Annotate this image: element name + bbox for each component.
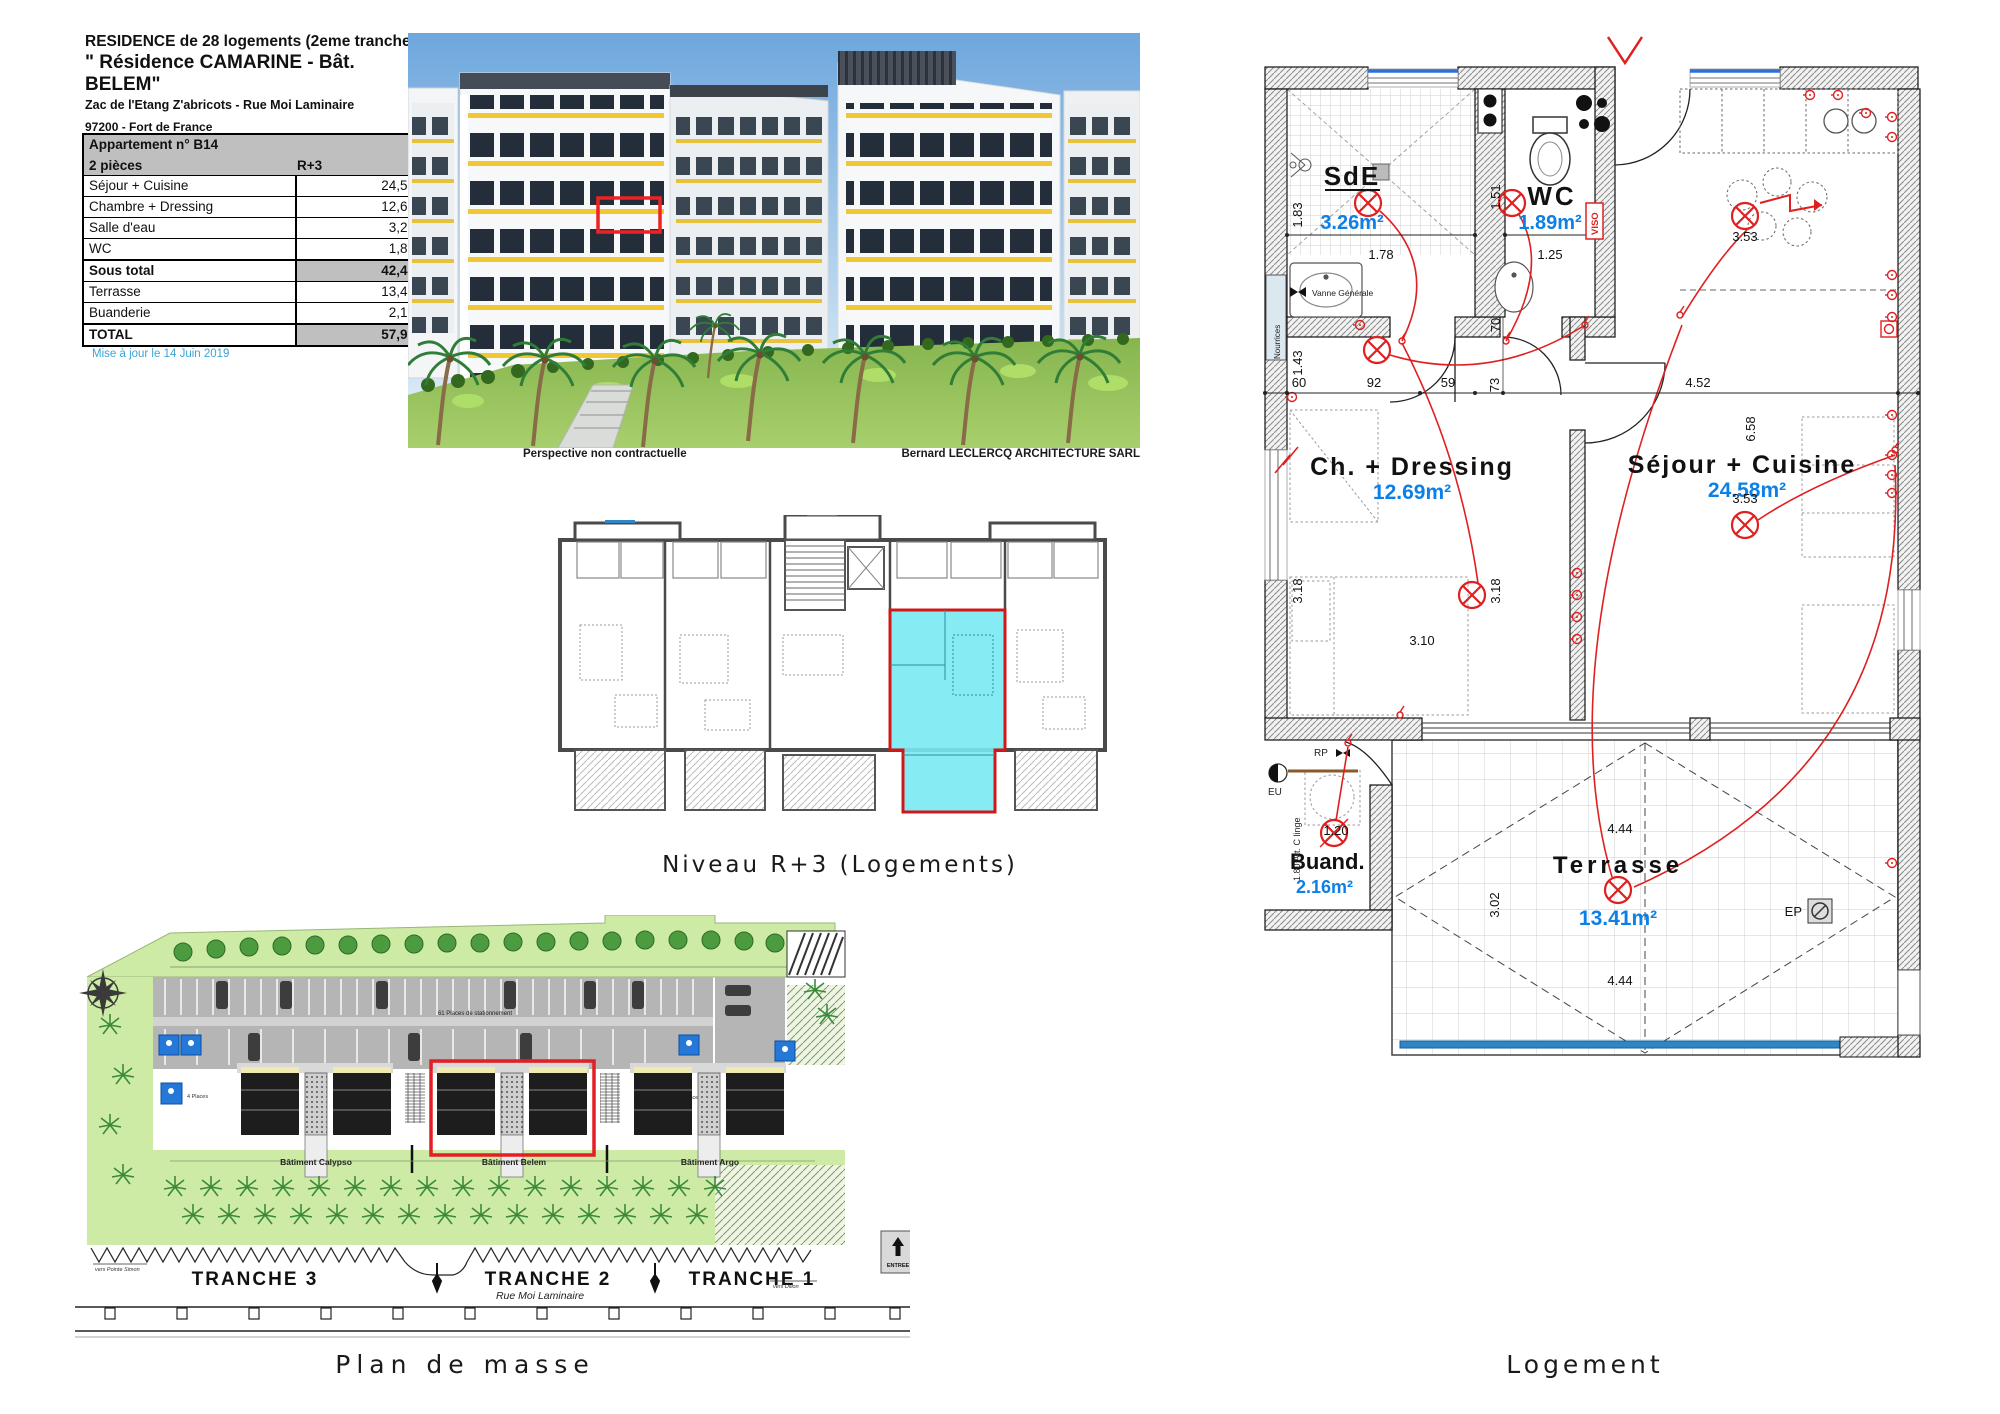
tranche3-label: TRANCHE 3 <box>192 1269 319 1290</box>
subtotal-row: Sous total 42,42 <box>84 259 422 281</box>
room-chambre-labels: Ch. + Dressing 12.69m² 3.18 3.10 3.18 <box>1290 453 1514 648</box>
table-row: WC 1,89 <box>84 238 422 259</box>
building-far-right <box>1064 91 1140 375</box>
dim-353m: 3.53 <box>1732 491 1757 506</box>
kitchen <box>1680 89 1898 290</box>
places-left-label: 4 Places <box>187 1094 208 1100</box>
room-name: Séjour + Cuisine <box>1628 451 1857 479</box>
dim-318m: 3.18 <box>1488 578 1503 603</box>
table-header-level: R+3 <box>273 135 422 175</box>
dim-178: 1.78 <box>1368 247 1393 262</box>
row-label: Séjour + Cuisine <box>84 176 297 196</box>
green-top-band <box>87 915 835 977</box>
direction-left-label: vers Pointe Simon <box>95 1267 140 1273</box>
apartment-number: Appartement n° B14 <box>89 135 273 154</box>
dim-151: 1.51 <box>1488 184 1503 209</box>
row-value: 1,89 <box>297 239 422 259</box>
dim-60: 60 <box>1292 375 1306 390</box>
room-area: 1.89m² <box>1518 212 1582 234</box>
dim-125: 1.25 <box>1537 247 1562 262</box>
row-value: 24,58 <box>297 176 422 196</box>
wc-washbasin <box>1495 262 1533 312</box>
table-header-row: Appartement n° B14 2 pièces R+3 <box>84 135 422 175</box>
entry-canopy <box>787 931 845 977</box>
dim-444b: 4.44 <box>1607 973 1632 988</box>
street-label: Rue Moi Laminaire <box>496 1290 584 1302</box>
terrace-drain <box>1808 899 1832 923</box>
caption-left: Perspective non contractuelle <box>523 448 687 460</box>
table-row: Salle d'eau 3,26 <box>84 217 422 238</box>
table-row: Chambre + Dressing 12,69 <box>84 196 422 217</box>
dim-143: 1.43 <box>1290 350 1305 375</box>
update-note: Mise à jour le 14 Juin 2019 <box>92 348 229 360</box>
dim-310: 3.10 <box>1409 633 1434 648</box>
technical-shaft <box>1478 89 1502 133</box>
project-header: RESIDENCE de 28 logements (2eme tranche)… <box>85 33 425 134</box>
room-name: Terrasse <box>1553 852 1683 879</box>
bank-right2 <box>715 1165 845 1245</box>
floorplan-caption: Niveau R+3 (Logements) <box>640 852 1040 878</box>
dim-59: 59 <box>1441 375 1455 390</box>
apartment-plan: SdE 3.26m² 1.78 1.83 WC 1.89m² 1.25 1.51… <box>1250 25 1950 1070</box>
apartment-type: 2 pièces <box>89 156 273 175</box>
row-label: WC <box>84 239 297 259</box>
row-label: Salle d'eau <box>84 218 297 238</box>
row-label: Terrasse <box>84 282 297 302</box>
site-plan: 61 Places de stationnement 4 Places 6 Pl… <box>75 915 910 1340</box>
table-header-left: Appartement n° B14 2 pièces <box>84 135 273 175</box>
dim-353t: 3.53 <box>1732 229 1757 244</box>
project-title: RESIDENCE de 28 logements (2eme tranche) <box>85 33 425 51</box>
building-label-argo: Bâtiment Argo <box>681 1157 739 1167</box>
room-area: 12.69m² <box>1373 481 1451 504</box>
dim-302: 3.02 <box>1487 892 1502 917</box>
dim-70: 70 <box>1488 318 1503 332</box>
plan-sheet: RESIDENCE de 28 logements (2eme tranche)… <box>0 0 2000 1414</box>
nourrices-label: Nourrices <box>1273 325 1282 359</box>
kitchen-sink-icon <box>1824 109 1876 133</box>
building-far-left <box>408 88 458 378</box>
siteplan-caption: Plan de masse <box>330 1350 600 1379</box>
perspective-caption: Perspective non contractuelle Bernard LE… <box>408 448 1140 460</box>
total-row: TOTAL 57,99 <box>84 323 422 345</box>
room-name: SdE <box>1324 161 1381 191</box>
building-label-belem: Bâtiment Belem <box>482 1157 547 1167</box>
tranche2-label: TRANCHE 2 <box>485 1269 612 1290</box>
residence-name: " Résidence CAMARINE - Bât. BELEM" <box>85 52 425 96</box>
dim-120: 1.20 <box>1323 823 1348 838</box>
address-line: Zac de l'Etang Z'abricots - Rue Moi Lami… <box>85 98 425 112</box>
dim-452: 4.52 <box>1685 375 1710 390</box>
perspective-rendering <box>408 33 1140 448</box>
balconies <box>575 750 1097 810</box>
site-entrance: ENTREE <box>881 1231 910 1273</box>
row-value: 57,99 <box>297 325 422 345</box>
row-value: 3,26 <box>297 218 422 238</box>
room-area: 2.16m² <box>1296 877 1353 897</box>
att-linge-label: 1.80 Att. C linge <box>1292 817 1302 881</box>
row-label: Sous total <box>84 261 297 281</box>
rp-label: RP <box>1314 748 1328 759</box>
vanne-label: Vanne Générale <box>1312 288 1374 298</box>
table-row: Séjour + Cuisine 24,58 <box>84 175 422 196</box>
building-center <box>670 85 828 378</box>
row-label: TOTAL <box>84 325 297 345</box>
viso-label: VISO <box>1590 212 1601 235</box>
room-name: Ch. + Dressing <box>1310 453 1514 481</box>
parking-count-label: 61 Places de stationnement <box>438 1011 512 1017</box>
city-line: 97200 - Fort de France <box>85 120 425 134</box>
row-label: Chambre + Dressing <box>84 197 297 217</box>
wc-toilet <box>1530 117 1570 185</box>
room-area: 13.41m² <box>1579 907 1657 930</box>
apartment-caption: Logement <box>1450 1350 1720 1379</box>
room-sejour-labels: Séjour + Cuisine 24.58m² 3.53 3.53 4.52 … <box>1628 229 1857 506</box>
row-value: 13,41 <box>297 282 422 302</box>
row-value: 2,16 <box>297 303 422 323</box>
row-value: 42,42 <box>297 261 422 281</box>
ep-label: EP <box>1785 904 1802 919</box>
building-label-calypso: Bâtiment Calypso <box>280 1157 352 1167</box>
floorplan-r3 <box>545 515 1120 850</box>
area-table: Appartement n° B14 2 pièces R+3 Séjour +… <box>82 133 424 347</box>
table-row: Terrasse 13,41 <box>84 281 422 302</box>
room-terrasse <box>1392 740 1920 1057</box>
table-row: Buanderie 2,16 <box>84 302 422 323</box>
entree-label: ENTREE <box>887 1263 910 1269</box>
row-value: 12,69 <box>297 197 422 217</box>
dim-92: 92 <box>1367 375 1381 390</box>
room-area: 3.26m² <box>1320 212 1384 234</box>
room-name: WC <box>1527 181 1576 211</box>
caption-right: Bernard LECLERCQ ARCHITECTURE SARL <box>901 448 1140 460</box>
bank-right <box>787 985 845 1065</box>
unit-b14-highlight <box>890 610 1005 812</box>
row-label: Buanderie <box>84 303 297 323</box>
dim-444t: 4.44 <box>1607 821 1632 836</box>
viso-tag: VISO <box>1586 203 1603 239</box>
direction-right-label: vers Dillon <box>773 1284 799 1290</box>
road <box>75 1307 910 1337</box>
dim-658: 6.58 <box>1743 416 1758 441</box>
dim-183: 1.83 <box>1290 202 1305 227</box>
eu-label: EU <box>1268 787 1282 798</box>
dim-318l: 3.18 <box>1290 578 1305 603</box>
dim-73: 73 <box>1487 378 1502 392</box>
